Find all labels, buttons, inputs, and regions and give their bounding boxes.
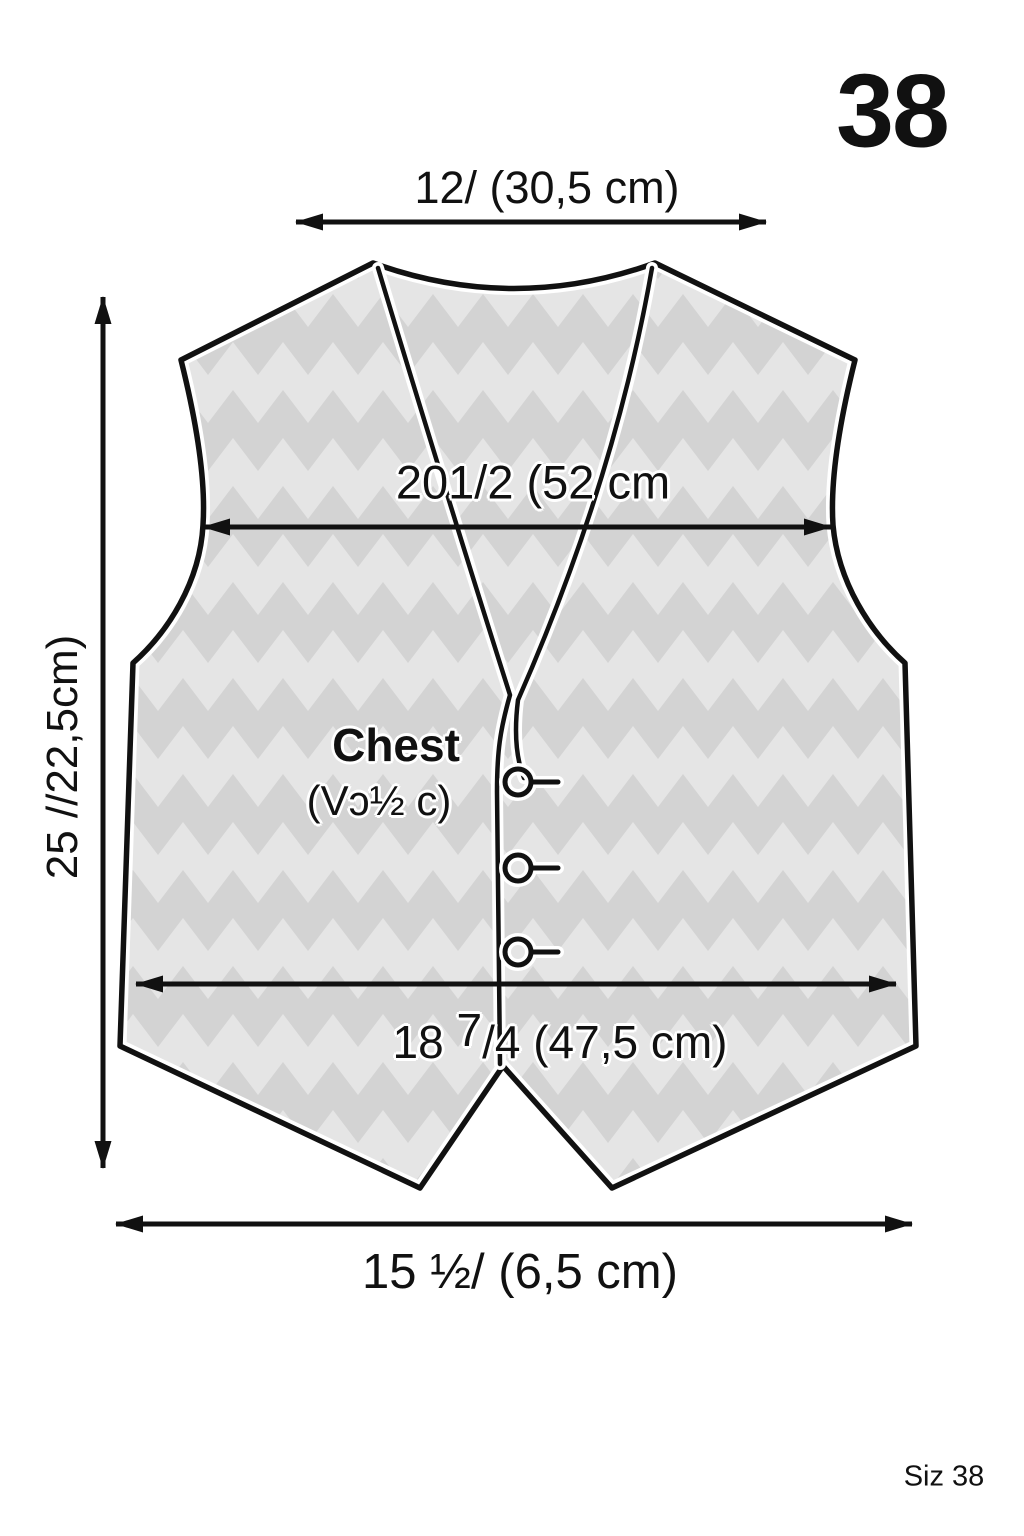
- side-length-label: 25 //22,5cm): [38, 635, 88, 880]
- hem-width-label: 18 7/4 (47,5 cm): [393, 1015, 728, 1069]
- bottom-width-label: 15 ½/ (6,5 cm): [362, 1244, 678, 1300]
- footer-size-note: Siz 38: [904, 1461, 985, 1494]
- vest-diagram-canvas: [0, 0, 1024, 1536]
- shoulder-width-label: 12/ (30,5 cm): [414, 162, 679, 214]
- pattern-diagram-page: 38 12/ (30,5 cm) 201/2 (52 cm 25 //22,5c…: [0, 0, 1024, 1536]
- chest-width-label: 201/2 (52 cm: [396, 455, 670, 510]
- size-badge: 38: [836, 53, 948, 172]
- hem-width-numerator: 7: [456, 1004, 482, 1056]
- hem-width-prefix: 18: [393, 1016, 457, 1068]
- chest-note-value: (Vɔ½ c): [307, 777, 452, 825]
- chest-note-title: Chest: [332, 718, 460, 772]
- hem-width-rest: /4 (47,5 cm): [482, 1016, 727, 1068]
